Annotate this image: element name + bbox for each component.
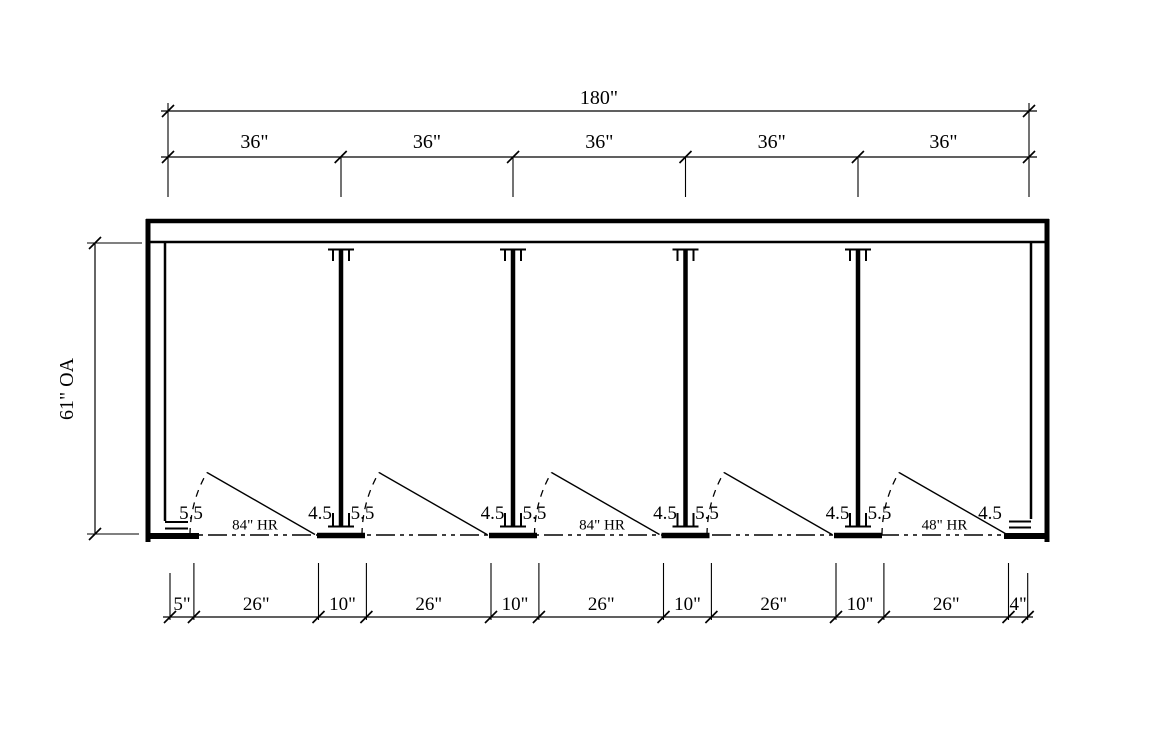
bottom-dim-label: 5" [173, 594, 190, 615]
stall-width-label: 36" [585, 131, 613, 153]
partition-panel-4 [834, 250, 882, 536]
bottom-dim-label: 10" [847, 594, 874, 615]
partition-panel-2 [489, 250, 537, 536]
bottom-dim-label: 10" [674, 594, 701, 615]
stall-width-label: 36" [413, 131, 441, 153]
stall-width-label: 36" [758, 131, 786, 153]
bottom-dim-label: 26" [415, 594, 442, 615]
latch-clearance-label: 4.5 [308, 503, 332, 524]
door-swing-4 [707, 473, 832, 536]
latch-clearance-label: 4.5 [978, 503, 1002, 524]
stall-width-label: 36" [240, 131, 268, 153]
bottom-dim-label: 26" [933, 594, 960, 615]
bottom-dimension-line: 5" 26" 10" 26" 10" 26" 10" 26" 10" 26" 4… [163, 563, 1034, 623]
partition-panel-3 [662, 250, 710, 536]
headrail-label: 84" HR [232, 518, 278, 534]
hinge-clearance-label: 5.5 [351, 503, 375, 524]
partition-panel-1 [317, 250, 365, 536]
latch-clearance-label: 4.5 [826, 503, 850, 524]
latch-clearance-label: 4.5 [481, 503, 505, 524]
hinge-clearance-label: 5.5 [523, 503, 547, 524]
latch-clearance-label: 4.5 [653, 503, 677, 524]
headrail-label: 84" HR [579, 518, 625, 534]
bottom-dim-label: 4" [1009, 594, 1026, 615]
bottom-dim-label: 26" [760, 594, 787, 615]
bottom-dim-label: 10" [329, 594, 356, 615]
partition-plan-drawing: 180" 36" 36" 36" 36" 36" [0, 0, 1154, 747]
hinge-clearance-label: 5.5 [695, 503, 719, 524]
right-wall [1004, 219, 1049, 542]
hinge-clearance-label: 5.5 [868, 503, 892, 524]
overall-width-dimension: 180" [161, 87, 1037, 117]
door-leaf-line [379, 473, 487, 535]
left-wall [146, 219, 199, 542]
stall-width-label: 36" [929, 131, 957, 153]
depth-dimension: 61" OA [56, 237, 142, 540]
bottom-dim-label: 26" [588, 594, 615, 615]
door-swing-2 [362, 473, 487, 536]
headrail-label: 48" HR [922, 518, 968, 534]
bottom-dim-label: 10" [502, 594, 529, 615]
hinge-clearance-label: 5.5 [179, 503, 203, 524]
overall-width-label: 180" [580, 87, 618, 109]
door-leaf-line [724, 473, 832, 535]
stall-width-dimensions: 36" 36" 36" 36" 36" [161, 131, 1037, 163]
bottom-dim-label: 26" [243, 594, 270, 615]
back-wall [146, 221, 1049, 242]
overall-depth-label: 61" OA [56, 357, 78, 420]
plan-view-svg: 180" 36" 36" 36" 36" 36" [0, 0, 1154, 747]
